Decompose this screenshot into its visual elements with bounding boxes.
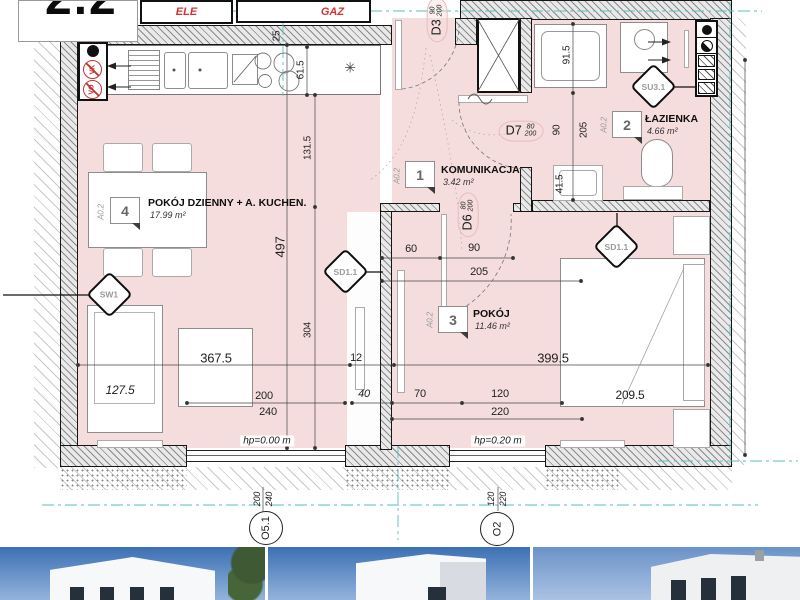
level-living: hp=0.00 m [240, 436, 294, 447]
dim-sofa: 127.5 [105, 383, 134, 397]
door-d7-height: 200 [525, 131, 537, 138]
floor-plan-page: ✳ VK VO [0, 0, 800, 600]
wall-bath-left-upper [520, 18, 532, 93]
house-window [130, 587, 144, 600]
vent-vk: VK [83, 60, 102, 79]
shaft-cell-dot [697, 22, 716, 38]
shaft-cell-hatch [698, 82, 715, 94]
bed-bench [560, 440, 625, 448]
insulation-dots-right [545, 468, 620, 490]
wall-bath-bottom [532, 200, 710, 212]
dim-living-height: 497 [273, 236, 288, 257]
wall-top-right [460, 0, 732, 20]
door-d3-width: 90 [430, 5, 437, 17]
door-d3-tag: D3 90200 [427, 0, 448, 42]
dim-90: 90 [468, 242, 480, 254]
tv-sideboard [355, 307, 365, 390]
kitchen-sink-left [164, 52, 186, 89]
dim-205: 205 [470, 266, 488, 278]
bed-pillow [683, 264, 705, 401]
insulation-dots-mid [345, 468, 450, 490]
hatch-margin-left [34, 40, 60, 468]
room-bedroom-number: 3 [438, 306, 468, 333]
wall-entry-step [455, 18, 477, 45]
dim-70: 70 [414, 388, 426, 400]
nightstand [673, 216, 710, 255]
room-bedroom-code: A0.2 [426, 312, 435, 328]
room-living-name: POKÓJ DZIENNY + A. KUCHEN. [148, 197, 306, 209]
room-number-text: 3 [449, 312, 457, 328]
room-bath-area: 4.66 m² [647, 126, 678, 136]
building-window [671, 580, 686, 600]
dim-bath-205: 205 [579, 122, 590, 138]
room-hall-number: 1 [405, 161, 435, 188]
room-bath-number: 2 [612, 111, 642, 138]
insulation-dots-left [60, 468, 187, 490]
room-bedroom-area: 11.46 m² [475, 321, 510, 331]
marker-sw1-label: SW1 [100, 289, 118, 299]
window1-mark-label: O5.1 [260, 516, 272, 540]
washing-machine-drum [634, 29, 655, 50]
tree [228, 547, 265, 600]
dim-120: 120 [491, 388, 509, 400]
vent-vo-label: VO [89, 84, 96, 94]
dim-bed: 209.5 [615, 388, 644, 402]
kitchen-drawers [128, 50, 160, 90]
shaft-cell-half [697, 38, 716, 54]
door-d7-label: D7 [506, 124, 522, 138]
door-d7-leaf [458, 95, 528, 103]
room-bath-code: A0.2 [600, 117, 609, 133]
shaft-cell-hatch [698, 55, 715, 67]
door-d6-width: 80 [461, 200, 468, 212]
utility-box-gaz: GAZ [236, 0, 371, 23]
marker-sd11-label: SD1.1 [334, 267, 358, 277]
bedroom-shelf [397, 270, 405, 393]
marker-su31-label: SU3.1 [642, 82, 666, 92]
photo-building-2 [268, 547, 530, 600]
window2-width: 120 [486, 492, 496, 506]
door-d6-label: D6 [461, 214, 475, 230]
dim-40: 40 [358, 388, 370, 400]
utility-box-ele: ELE [140, 0, 233, 24]
dim-60: 60 [405, 243, 417, 255]
balcony-recess [428, 587, 446, 600]
window2-mark: O2 [480, 512, 514, 546]
level-bedroom: hp=0.20 m [471, 436, 525, 447]
building-shade [440, 562, 486, 600]
kitchen-sink-right [188, 52, 228, 89]
dim-bath-90: 90 [552, 125, 563, 136]
house-window [160, 587, 174, 600]
room-hall-code: A0.2 [393, 168, 402, 184]
dim-220: 220 [491, 406, 509, 418]
wall-left [60, 40, 78, 465]
door-d3-height: 200 [437, 5, 444, 17]
dim-living-lower: 304 [303, 322, 314, 338]
wall-hall-bedroom-a [380, 203, 440, 212]
wall-bottom-c [545, 445, 732, 467]
building-window [731, 576, 746, 600]
coffee-table [178, 328, 253, 407]
room-living-code: A0.2 [97, 204, 106, 220]
towel-radiator [684, 30, 689, 68]
door-d3-leaf [395, 20, 402, 90]
wall-bottom-b [345, 445, 450, 467]
wall-partition-living-bedroom [380, 203, 392, 450]
room-hall-area: 3.42 m² [443, 177, 474, 187]
chimney [755, 550, 764, 561]
window2-height: 220 [498, 492, 508, 506]
window1-width: 200 [252, 492, 262, 506]
shaft-kitchen-dot [87, 45, 99, 57]
chair [152, 143, 192, 172]
dim-200: 200 [255, 390, 273, 402]
door-d3-label: D3 [430, 19, 444, 35]
door-d7-width: 80 [525, 124, 537, 131]
dim-bedroom-width: 399.5 [537, 351, 569, 366]
house-window [70, 587, 84, 600]
room-bath-name: ŁAZIENKA [645, 113, 698, 125]
marker-sd11-label: SD1.1 [605, 242, 629, 252]
room-number-text: 4 [121, 203, 129, 219]
shaft-entry-box [477, 18, 520, 93]
door-d6-leaf [441, 214, 447, 318]
building-window [701, 578, 716, 600]
wall-bottom-a [60, 445, 187, 467]
hatch-margin-right [732, 18, 746, 465]
shaft-cell-hatch [698, 69, 715, 81]
window1-height: 240 [264, 492, 274, 506]
sofa-bench [97, 440, 163, 448]
toilet-tank [623, 186, 683, 200]
dim-living-upper: 131.5 [303, 136, 314, 160]
chair [103, 143, 143, 172]
room-bedroom-name: POKÓJ [473, 308, 510, 320]
dim-kitchen-depth: 61.5 [296, 61, 307, 80]
nightstand [673, 409, 710, 448]
house-window [100, 587, 114, 600]
window1-mark: O5.1 [249, 511, 283, 545]
dim-240: 240 [259, 406, 277, 418]
shaft-bath-box [695, 20, 718, 97]
door-d6-height: 200 [468, 200, 475, 212]
vent-vk-label: VK [89, 65, 96, 75]
vent-vo: VO [83, 80, 102, 99]
chair [152, 248, 192, 277]
room-living-number: 4 [110, 197, 140, 224]
door-d7-tag: D7 80200 [499, 121, 544, 142]
photo-building-3 [533, 547, 800, 600]
window2-mark-label: O2 [491, 522, 503, 537]
room-number-text: 1 [416, 167, 424, 183]
window-bedroom [450, 450, 545, 462]
toilet-bowl [641, 139, 673, 187]
dim-wall-12: 12 [350, 352, 362, 364]
utility-gaz-label: GAZ [321, 6, 344, 18]
kitchen-dishwasher [232, 54, 258, 85]
room-number-text: 2 [623, 117, 631, 133]
plan-number-text: 2.2 [45, 0, 118, 26]
room-living-area: 17.99 m² [150, 210, 186, 220]
ceiling-light-icon: ✳ [344, 60, 356, 77]
window-living [187, 450, 345, 462]
plan-number-badge: 2.2 [18, 0, 138, 42]
dim-basin: 41.5 [555, 175, 566, 194]
dim-living-width: 367.5 [200, 351, 232, 366]
dim-shower: 91.5 [562, 46, 573, 65]
photo-building-1 [0, 547, 265, 600]
door-d6-tag: D6 80200 [458, 193, 479, 238]
room-hall-name: KOMUNIKACJA [441, 164, 520, 176]
wall-bath-left-lower [520, 167, 532, 212]
utility-ele-label: ELE [176, 6, 197, 18]
dining-table [88, 172, 207, 248]
dim-25: 25 [272, 31, 283, 42]
